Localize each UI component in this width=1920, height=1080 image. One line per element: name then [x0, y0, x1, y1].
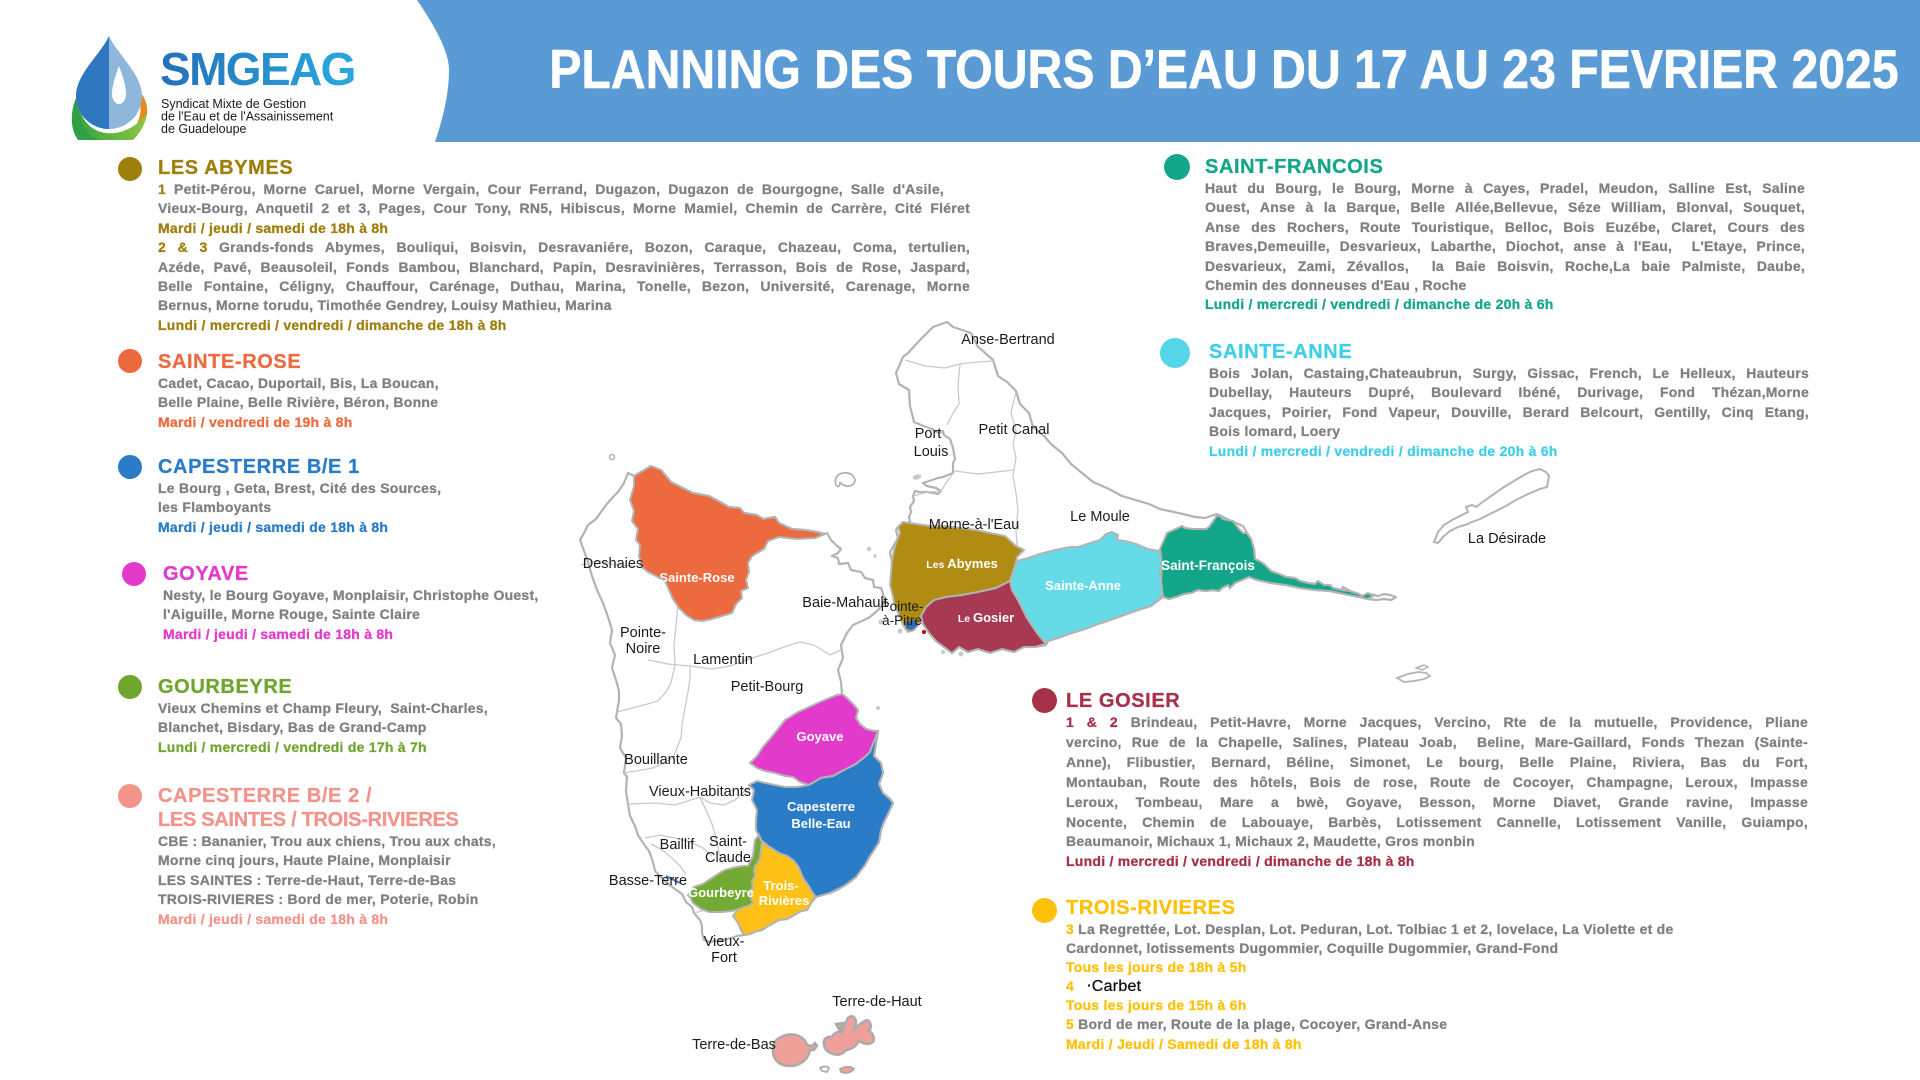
svg-text:Pointe-: Pointe- [881, 599, 924, 614]
svg-text:Goyave: Goyave [797, 729, 844, 744]
svg-text:Deshaies: Deshaies [583, 556, 643, 572]
svg-text:Lamentin: Lamentin [693, 652, 753, 668]
svg-text:Belle-Eau: Belle-Eau [791, 816, 850, 831]
svg-text:Anse-Bertrand: Anse-Bertrand [961, 332, 1055, 348]
svg-text:Vieux-: Vieux- [704, 934, 745, 950]
svg-text:Sainte-Rose: Sainte-Rose [659, 570, 734, 585]
svg-text:Pointe-: Pointe- [620, 625, 666, 641]
svg-text:Capesterre: Capesterre [787, 799, 855, 814]
svg-text:La Désirade: La Désirade [1468, 531, 1546, 547]
svg-text:Louis: Louis [914, 444, 949, 460]
svg-text:Terre-de-Haut: Terre-de-Haut [832, 994, 921, 1010]
svg-text:Basse-Terre: Basse-Terre [609, 873, 687, 889]
svg-text:Les Abymes: Les Abymes [926, 556, 998, 571]
svg-text:SMGEAG: SMGEAG [160, 43, 355, 95]
svg-text:Terre-de-Bas: Terre-de-Bas [692, 1037, 776, 1053]
svg-text:Noire: Noire [626, 641, 661, 657]
svg-text:à-Pitre: à-Pitre [882, 613, 922, 628]
svg-text:Le Moule: Le Moule [1070, 509, 1130, 525]
svg-text:Claude: Claude [705, 850, 751, 866]
svg-text:Baie-Mahault: Baie-Mahault [802, 595, 887, 611]
svg-text:Gourbeyre: Gourbeyre [688, 885, 754, 900]
svg-text:de Guadeloupe: de Guadeloupe [161, 122, 247, 136]
svg-text:Rivières: Rivières [759, 893, 810, 908]
svg-text:Sainte-Anne: Sainte-Anne [1045, 578, 1121, 593]
svg-text:Petit-Bourg: Petit-Bourg [731, 679, 804, 695]
svg-text:Morne-à-l'Eau: Morne-à-l'Eau [929, 517, 1020, 533]
svg-text:Saint-François: Saint-François [1161, 558, 1255, 573]
svg-text:Petit Canal: Petit Canal [979, 422, 1050, 438]
svg-text:Fort: Fort [711, 950, 737, 966]
svg-text:Vieux-Habitants: Vieux-Habitants [649, 784, 751, 800]
svg-text:Trois-: Trois- [763, 878, 798, 893]
svg-text:Bouillante: Bouillante [624, 752, 688, 768]
svg-text:Le Gosier: Le Gosier [958, 610, 1014, 625]
svg-text:Baillif: Baillif [660, 837, 696, 853]
svg-text:Port: Port [915, 426, 942, 442]
svg-text:Saint-: Saint- [709, 834, 747, 850]
